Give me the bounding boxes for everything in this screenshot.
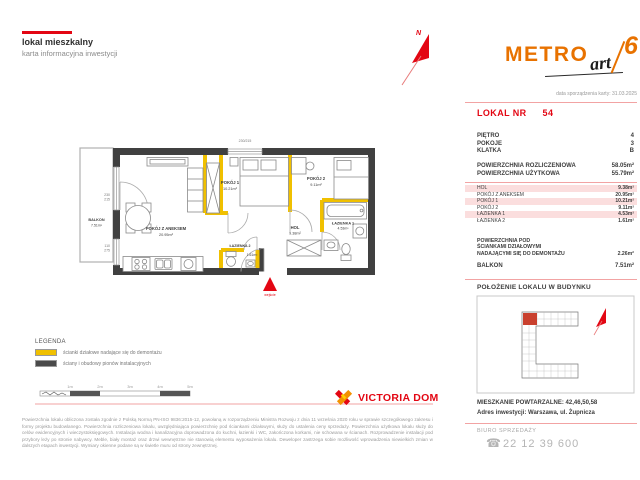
svg-text:4.53m²: 4.53m² (338, 227, 350, 231)
plan-label-balkon: BALKON (88, 218, 104, 222)
svg-text:230: 230 (104, 193, 110, 197)
svg-text:215: 215 (104, 198, 110, 202)
table-row: POKÓJ 110.21m² (465, 198, 637, 205)
legend-swatch-yellow (35, 349, 57, 356)
balcony-row: BALKON7.51m² (465, 263, 637, 269)
legend-item-partitions: ścianki działowe nadające się do demonta… (35, 349, 162, 356)
svg-text:10.21m²: 10.21m² (223, 187, 238, 191)
plan-label-lazienka1: ŁAZIENKA 1 (332, 222, 354, 226)
table-row: HOL9.38m² (465, 185, 637, 192)
table-row: ŁAZIENKA 14.53m² (465, 211, 637, 218)
entrance-label: wejście (264, 293, 276, 297)
area-row-rozliczeniowa: POWIERZCHNIA ROZLICZENIOWA58.05m² (465, 163, 637, 171)
window-dimension-labels: 230 215 110 275 230/215 (104, 139, 251, 253)
entrance-marker: wejście (263, 277, 277, 297)
svg-text:1.61m²: 1.61m² (247, 253, 258, 257)
area-row-uzytkowa: POWIERZCHNIA UŻYTKOWA55.79m² (465, 171, 637, 179)
disclaimer-text: Powierzchnia lokalu obliczona została zg… (22, 417, 433, 450)
svg-text:3m: 3m (127, 384, 133, 389)
svg-text:230/215: 230/215 (239, 139, 252, 143)
highlighted-unit (523, 313, 537, 325)
plan-label-pokoj-aneks: POKÓJ Z ANEKSEM (146, 226, 187, 231)
attr-row-klatka: KLATKAB (465, 148, 637, 156)
svg-text:110: 110 (104, 244, 110, 248)
svg-text:4m: 4m (157, 384, 163, 389)
attr-row-pietro: PIĘTRO4 (465, 133, 637, 141)
sales-phone-number: 22 12 39 600 (503, 438, 579, 450)
svg-text:9.38m²: 9.38m² (289, 232, 302, 236)
developer-logo: VICTORIA DOM (335, 388, 439, 407)
apartment-card-page: lokal mieszkalny karta informacyjna inwe… (0, 0, 640, 480)
svg-text:7.51m²: 7.51m² (91, 224, 103, 228)
plan-label-pokoj1: POKÓJ 1 (221, 180, 240, 185)
unit-number-value: 54 (543, 108, 554, 118)
sales-office-label: BIURO SPRZEDAŻY (477, 428, 536, 434)
unit-number-label: LOKAL NR (477, 108, 527, 118)
table-row: POKÓJ 29.11m² (465, 205, 637, 212)
legend-swatch-dark (35, 360, 57, 367)
phone-icon: ☎ (486, 436, 501, 450)
svg-text:5m: 5m (187, 384, 193, 389)
unit-number-heading: LOKAL NR 54 (477, 108, 553, 118)
north-label: N (416, 30, 422, 37)
rule-under-date (465, 102, 637, 103)
building-locator (477, 296, 634, 393)
location-heading: POŁOŻENIE LOKALU W BUDYNKU (477, 284, 591, 291)
north-arrow-icon: N (402, 30, 429, 85)
svg-text:20.95m²: 20.95m² (159, 233, 174, 237)
legend-item-walls: ściany i obudowy pionów instalacyjnych (35, 360, 151, 367)
svg-text:1m: 1m (67, 384, 73, 389)
investment-address: Adres inwestycji: Warszawa, ul. Żupnicza (477, 410, 595, 416)
repeat-units-note: MIESZKANIE POWTARZALNE: 42,46,50,58 (477, 400, 597, 406)
room-table: HOL9.38m² POKÓJ Z ANEKSEM20.95m² POKÓJ 1… (465, 185, 637, 225)
developer-name: VICTORIA DOM (358, 392, 439, 404)
victoria-dom-x-icon (335, 388, 354, 407)
partition-area-value: 2.26m² (465, 251, 634, 257)
svg-text:9.11m²: 9.11m² (310, 183, 322, 187)
scale-bar: 1m 2m 3m 4m 5m (40, 384, 193, 396)
legend-heading: LEGENDA (35, 339, 66, 345)
attr-row-pokoje: POKOJE3 (465, 141, 637, 149)
rule-above-sales (465, 423, 637, 424)
rule-above-location (465, 279, 637, 280)
plan-label-lazienka2: ŁAZIENKA 2 (229, 244, 250, 248)
svg-text:275: 275 (104, 249, 110, 253)
plan-label-hol: HOL (291, 225, 300, 230)
plan-label-pokoj2: POKÓJ 2 (307, 176, 326, 181)
svg-text:2m: 2m (97, 384, 103, 389)
date-note: data sporządzenia karty: 31.03.2025 (465, 91, 637, 97)
table-row: ŁAZIENKA 21.61m² (465, 218, 637, 225)
rule-above-rooms (465, 182, 637, 183)
